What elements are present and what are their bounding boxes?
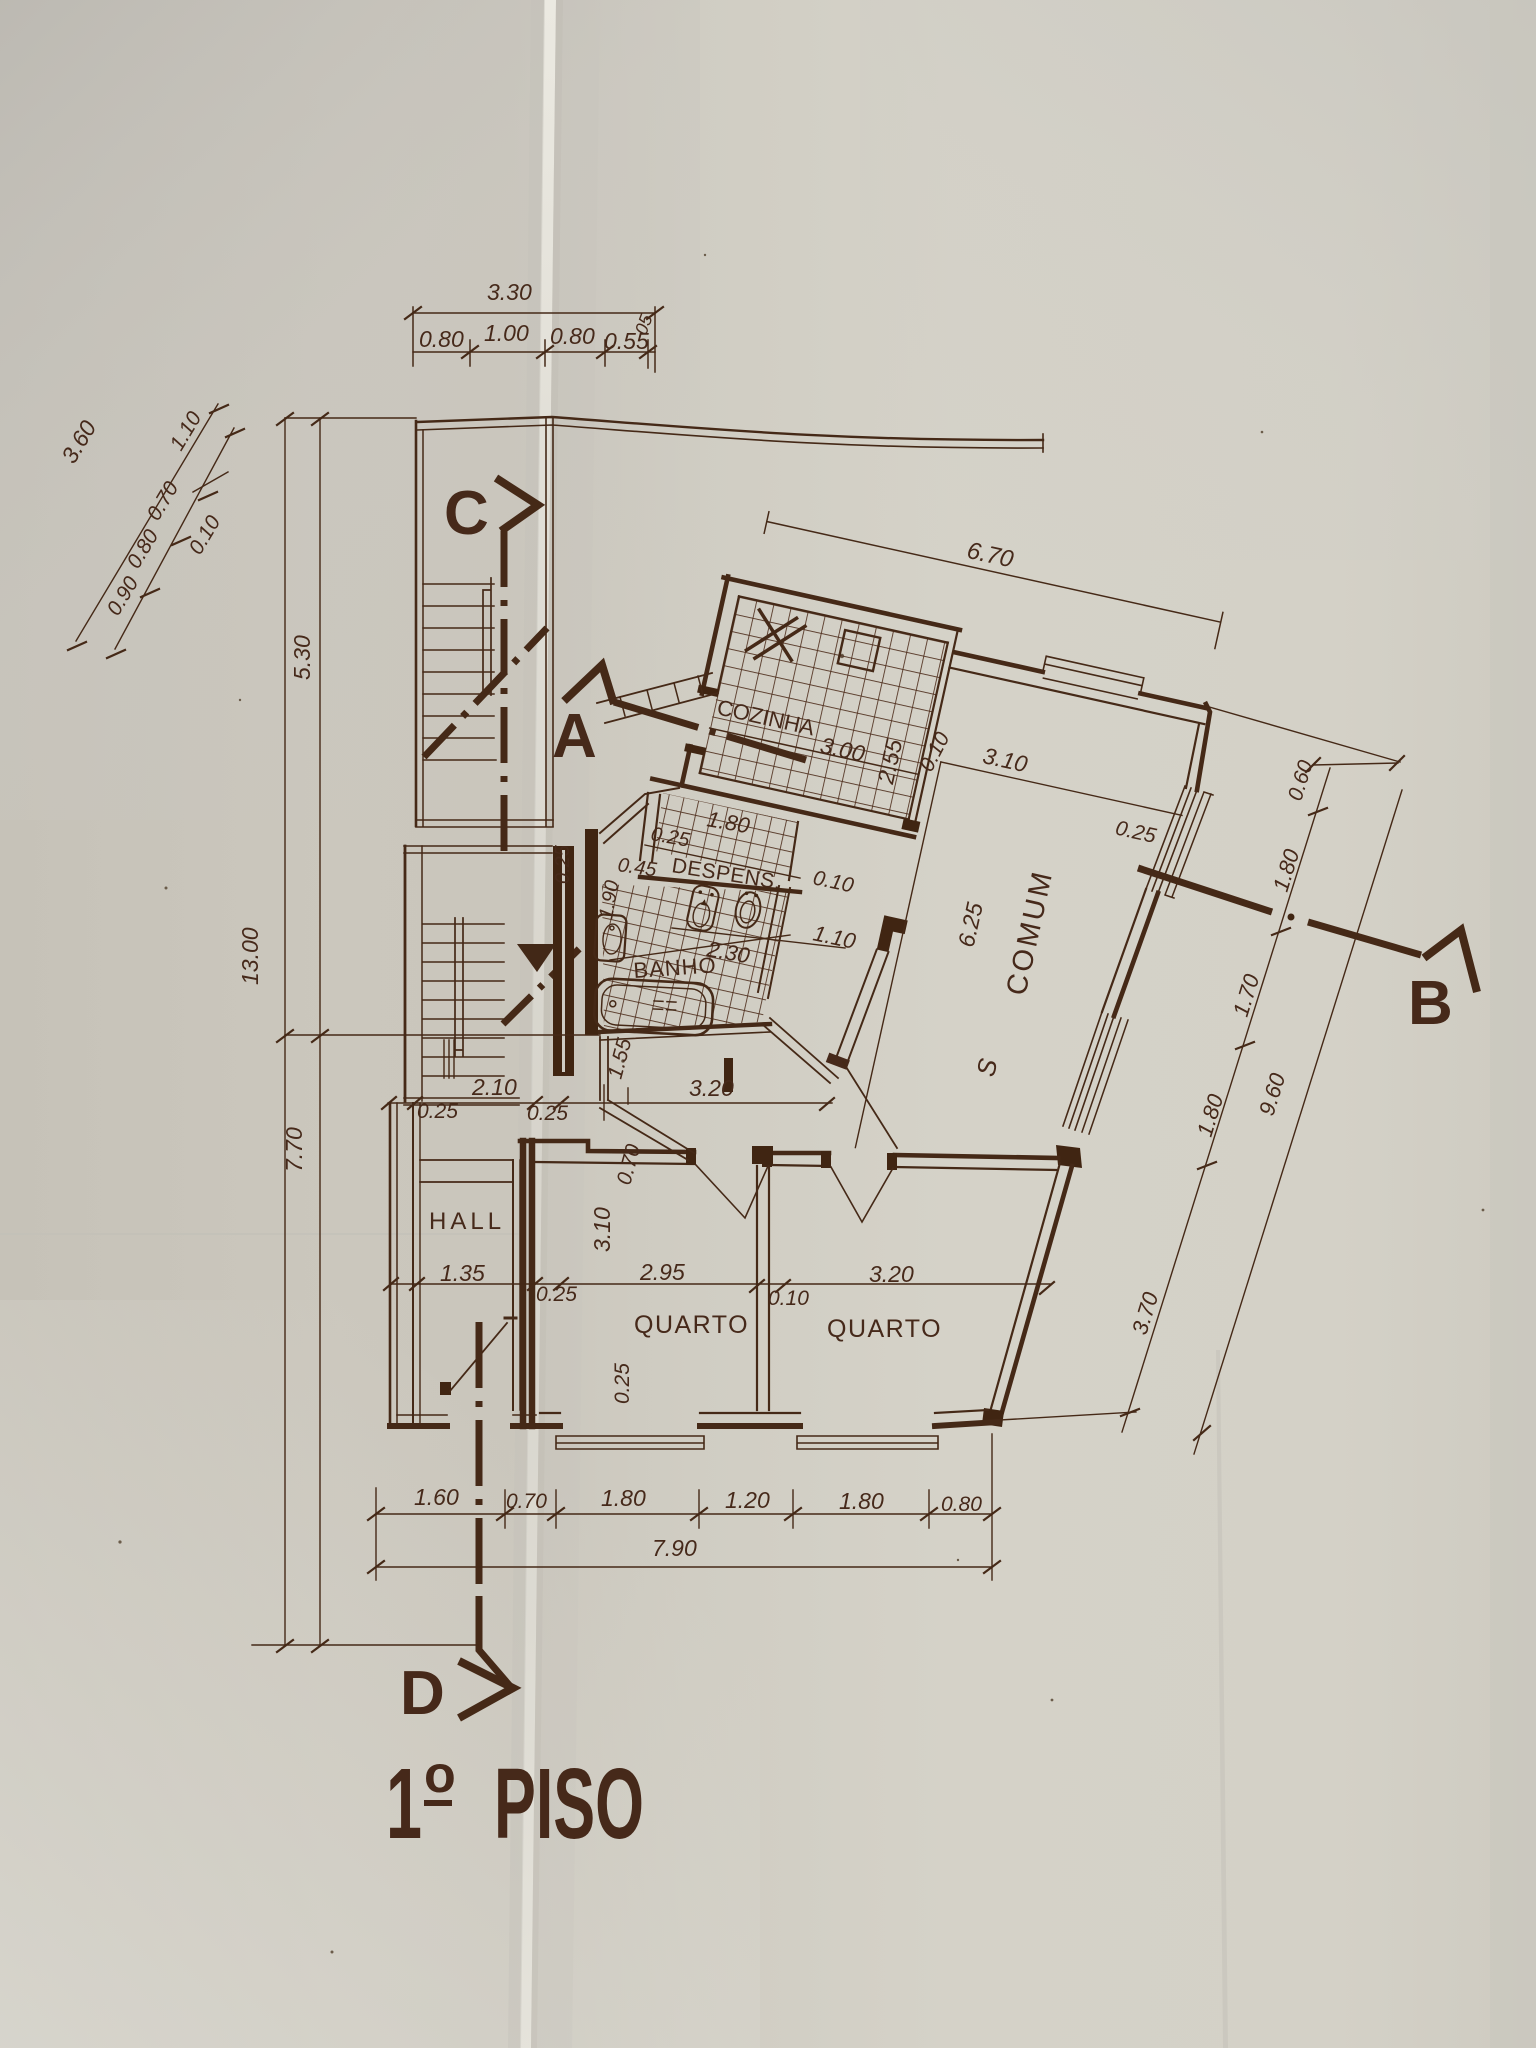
svg-text:0.80: 0.80 [941, 1493, 982, 1516]
svg-text:3.20: 3.20 [869, 1261, 914, 1287]
svg-text:A: A [552, 702, 597, 771]
svg-text:7.70: 7.70 [281, 1127, 307, 1172]
svg-text:HALL: HALL [429, 1208, 505, 1235]
svg-text:1.20: 1.20 [725, 1487, 770, 1513]
svg-text:1.80: 1.80 [601, 1485, 646, 1511]
svg-text:0.25: 0.25 [527, 1102, 568, 1125]
svg-text:2.95: 2.95 [639, 1259, 685, 1285]
svg-text:3.20: 3.20 [689, 1075, 734, 1101]
svg-text:7.90: 7.90 [652, 1535, 697, 1561]
svg-text:0.10: 0.10 [768, 1287, 809, 1310]
svg-text:QUARTO: QUARTO [827, 1315, 942, 1343]
svg-text:5.30: 5.30 [289, 635, 315, 680]
svg-text:0.80: 0.80 [419, 326, 464, 352]
svg-text:0.25: 0.25 [417, 1100, 458, 1123]
svg-text:0.25: 0.25 [552, 844, 574, 884]
svg-text:1: 1 [386, 1748, 422, 1860]
svg-text:1.80: 1.80 [839, 1488, 884, 1514]
svg-text:QUARTO: QUARTO [634, 1311, 749, 1339]
svg-text:3.30: 3.30 [487, 279, 532, 305]
svg-text:C: C [444, 479, 489, 548]
svg-text:1.00: 1.00 [484, 320, 529, 346]
svg-text:1.60: 1.60 [414, 1484, 459, 1510]
svg-text:0.70: 0.70 [506, 1490, 547, 1513]
svg-text:0.25: 0.25 [611, 1363, 634, 1404]
svg-text:o: o [424, 1746, 456, 1804]
svg-text:3.10: 3.10 [589, 1207, 615, 1252]
svg-text:13.00: 13.00 [237, 927, 263, 985]
svg-text:0.80: 0.80 [550, 323, 595, 349]
svg-text:D: D [400, 1659, 445, 1728]
svg-text:2.10: 2.10 [471, 1074, 517, 1100]
svg-text:1.35: 1.35 [440, 1260, 485, 1286]
svg-text:B: B [1408, 969, 1453, 1038]
svg-text:0.25: 0.25 [536, 1283, 577, 1306]
svg-text:PISO: PISO [494, 1748, 644, 1860]
